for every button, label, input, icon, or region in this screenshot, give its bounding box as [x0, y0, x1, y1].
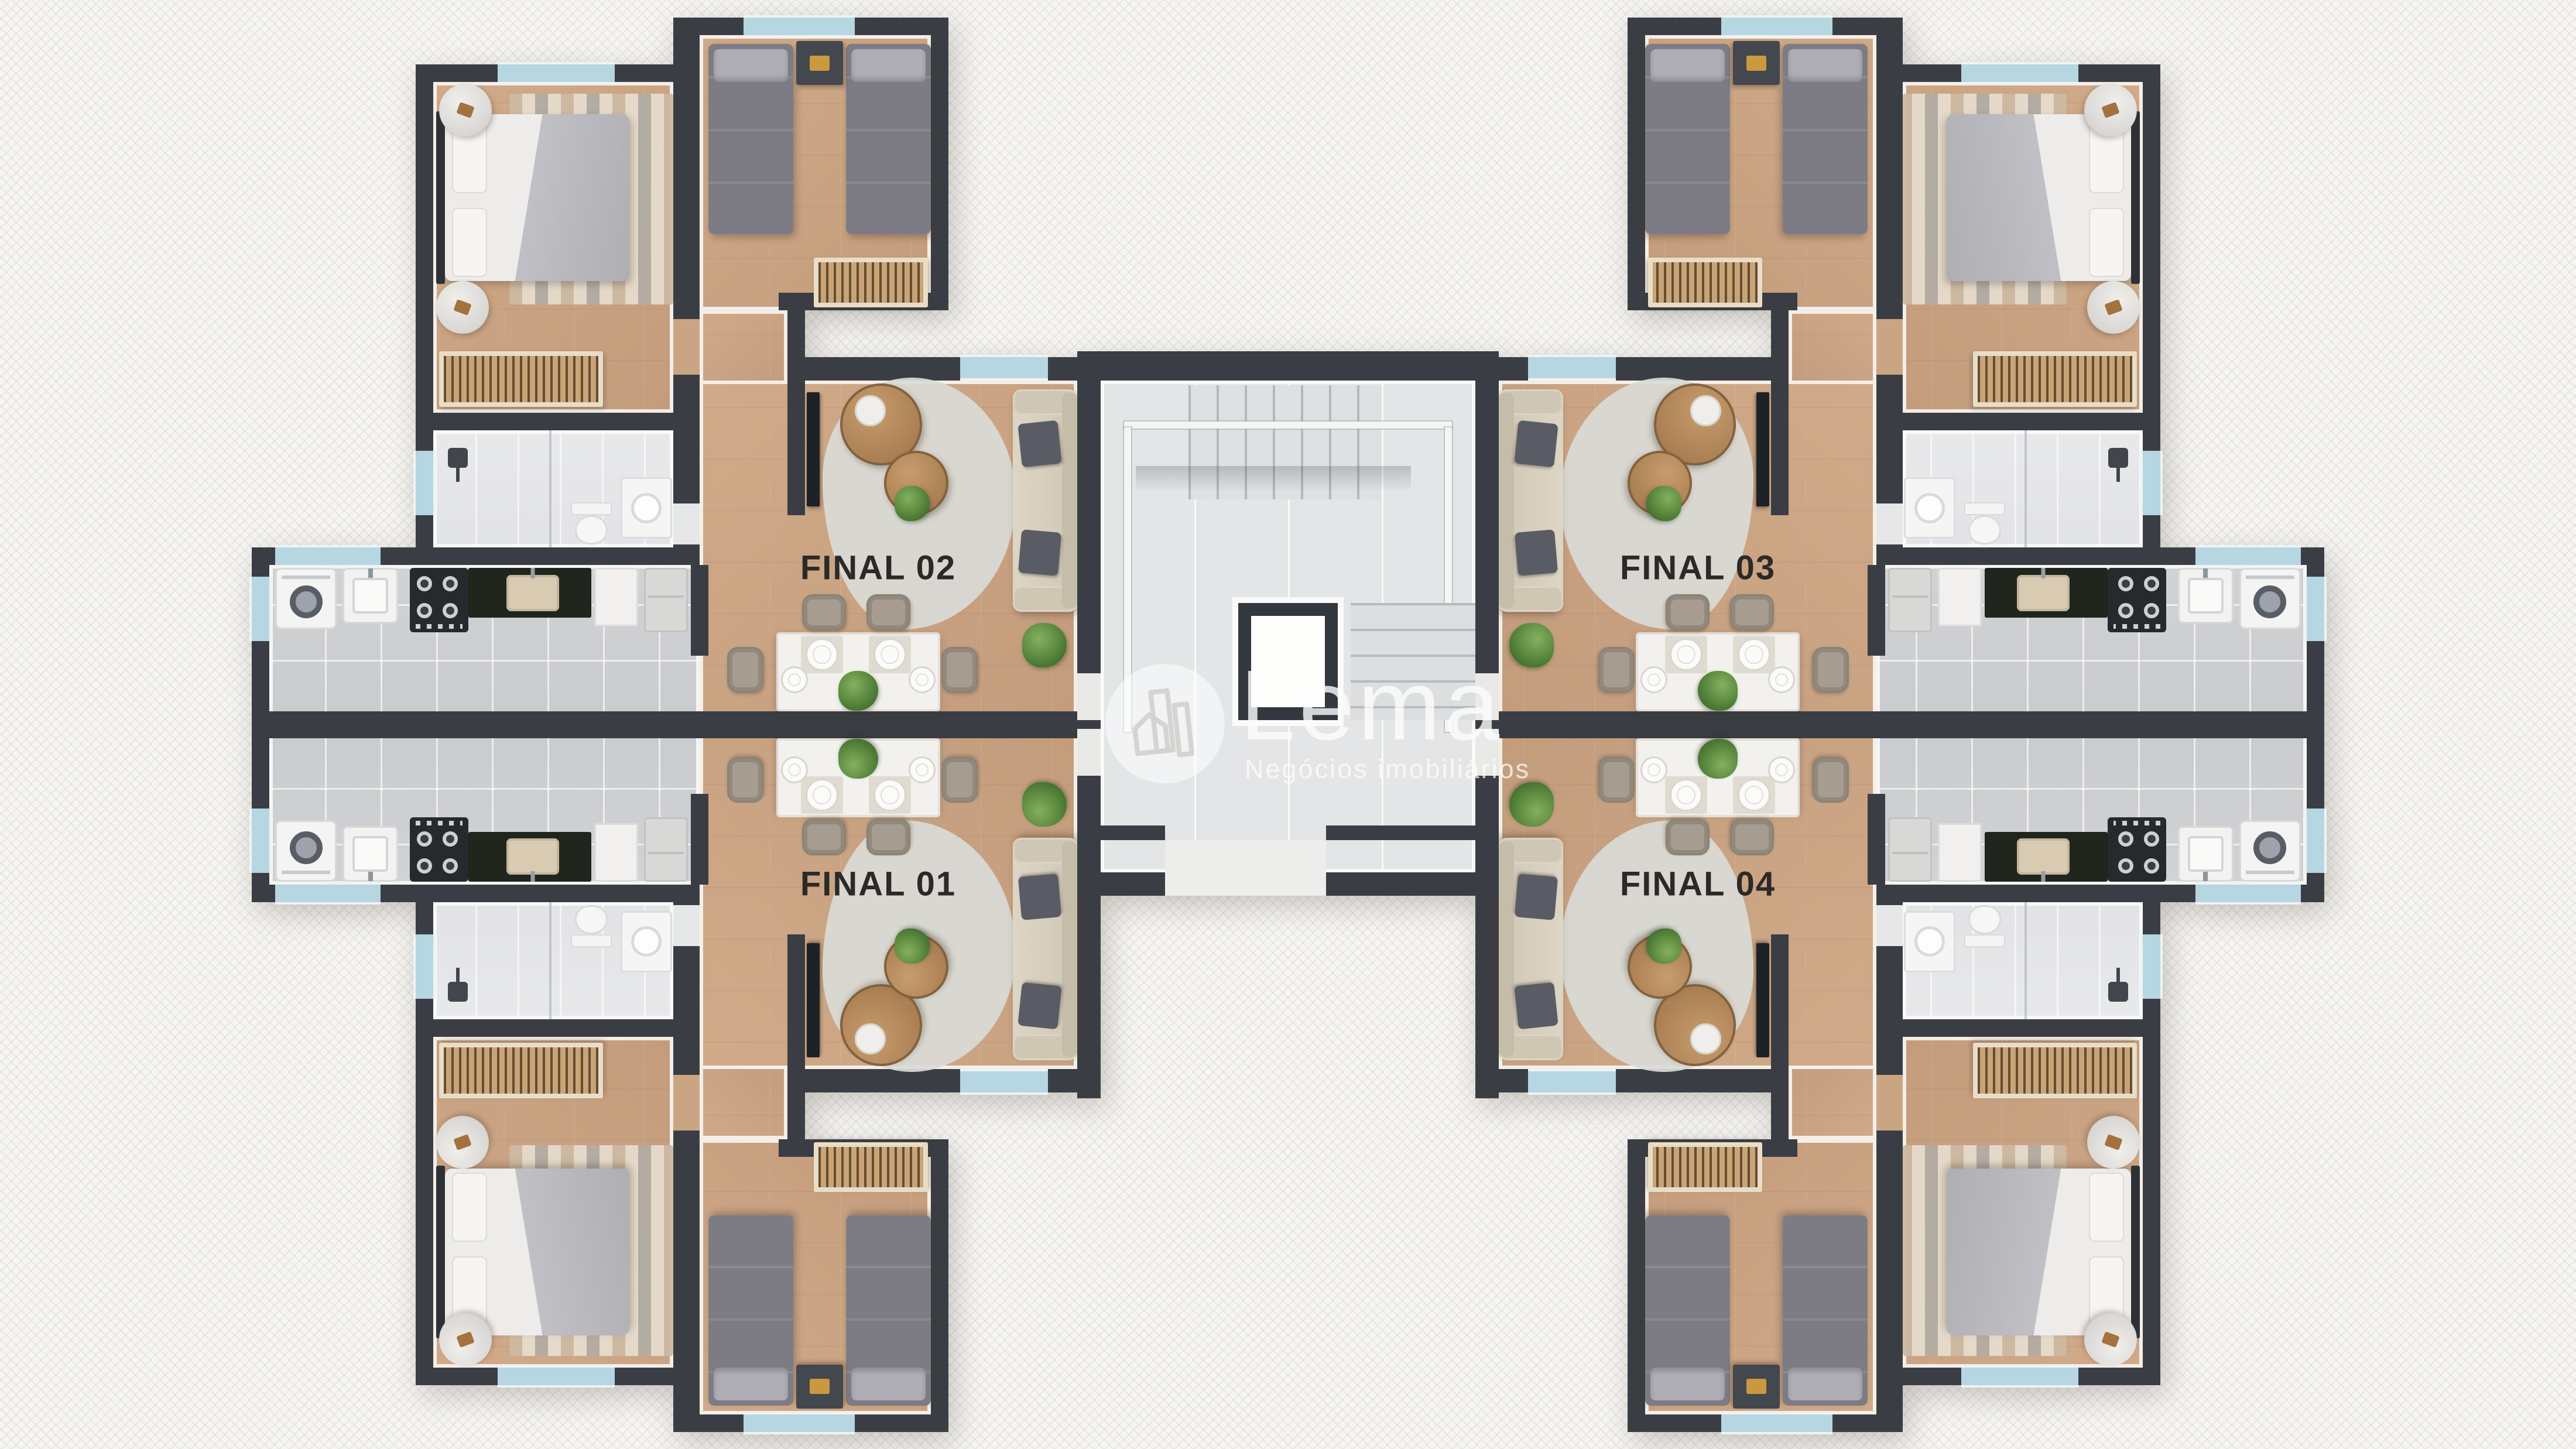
double-bed-icon	[445, 1169, 629, 1335]
wall-corridor-right	[1771, 310, 1789, 515]
dining-chair-icon	[1598, 647, 1635, 693]
pillow-icon	[851, 49, 926, 82]
dining-chair-icon	[1666, 819, 1710, 855]
single-bed-icon	[708, 44, 793, 234]
plate-icon	[1640, 756, 1667, 783]
unit-final-02-area	[252, 12, 1101, 725]
round-side-table-icon	[2084, 1313, 2137, 1366]
corridor-floor	[700, 1063, 787, 1139]
kitchen-window-icon	[2195, 882, 2301, 905]
fridge-icon	[1888, 817, 1932, 882]
twin-bedroom-window-icon	[744, 1412, 855, 1434]
pillow-icon	[714, 1368, 788, 1400]
sofa-icon	[1013, 838, 1077, 1060]
wall-living-top	[787, 1069, 1101, 1092]
kitchen-side-window-icon	[249, 577, 272, 641]
burner-icon	[2144, 858, 2159, 873]
burner-icon	[2118, 576, 2133, 591]
bed-headboard-icon	[436, 1166, 445, 1338]
living-window-icon	[1528, 1069, 1616, 1095]
building-entrance-vestibule	[1165, 840, 1326, 896]
watermark-logo-circle	[1105, 664, 1225, 783]
wall-twin-bedroom-right	[1628, 18, 1645, 310]
cabinet-icon	[594, 568, 638, 626]
wardrobe-icon	[439, 351, 603, 407]
plate-icon	[1738, 779, 1770, 811]
pillow-icon	[1650, 49, 1725, 82]
pillow-icon	[2089, 208, 2124, 277]
bathroom-window-icon	[413, 451, 436, 515]
sofa-cushion-icon	[1514, 420, 1558, 468]
living-window-icon	[960, 1069, 1048, 1095]
unit-final-03-area	[1475, 12, 2324, 725]
coffee-table-plant-icon	[1646, 486, 1681, 521]
apartment-unit	[252, 725, 1101, 1438]
burner-icon	[2118, 831, 2133, 847]
wall-middle-vertical	[673, 902, 700, 1432]
wall-living-top	[787, 357, 1101, 381]
wall-twin-bedroom-right	[931, 1139, 948, 1432]
cabinet-icon	[1938, 823, 1982, 882]
floor-plant-icon	[1022, 782, 1067, 827]
plate-icon	[1640, 666, 1667, 693]
stair-hall-wall-top	[1077, 351, 1499, 381]
dining-chair-icon	[727, 647, 763, 693]
kitchen-window-icon	[2195, 545, 2301, 567]
dining-chair-icon	[1730, 819, 1774, 855]
laundry-tank-icon	[342, 826, 398, 882]
stair-hall-wall-bottom-left	[1077, 872, 1165, 896]
kitchen-side-window-icon	[2304, 577, 2327, 641]
tv-panel-icon	[807, 392, 820, 506]
apartment-unit	[1475, 12, 2324, 725]
wardrobe-icon	[814, 258, 928, 307]
double-bedroom-window-icon	[1961, 62, 2078, 84]
toilet-bowl-icon	[1968, 515, 2001, 544]
centerpiece-plant-icon	[838, 739, 878, 779]
double-bedroom-door-opening	[1876, 1075, 1903, 1131]
bed-blanket-icon	[515, 1169, 629, 1335]
double-bed-icon	[1947, 1169, 2131, 1335]
wall-unit-separation	[1475, 711, 2324, 725]
single-bed-icon	[846, 1215, 931, 1406]
stove-icon	[2108, 568, 2166, 632]
wall-corridor-right	[787, 934, 805, 1139]
sofa-back-icon	[1062, 841, 1077, 1057]
coffee-table-plant-icon	[895, 929, 930, 964]
wall-unit-separation	[1475, 725, 2324, 738]
wall-bedroom-bathroom	[433, 1019, 673, 1037]
kitchen-side-window-icon	[249, 809, 272, 873]
plate-icon	[806, 779, 838, 811]
stove-icon	[410, 568, 468, 632]
wall-living-top	[1475, 357, 1789, 381]
dining-chair-icon	[727, 757, 763, 803]
single-bed-icon	[1645, 1215, 1730, 1406]
tv-panel-icon	[1756, 943, 1769, 1057]
nightstand-icon	[796, 41, 843, 85]
tv-panel-icon	[1756, 392, 1769, 506]
apartment-unit	[252, 12, 1101, 725]
double-bedroom-door-opening	[673, 1075, 700, 1131]
double-bedroom-window-icon	[498, 1365, 615, 1388]
shower-glass-icon	[2025, 430, 2027, 547]
washing-machine-icon	[275, 568, 337, 629]
double-bedroom-window-icon	[1961, 1365, 2078, 1388]
wall-middle-vertical	[1876, 902, 1903, 1432]
bed-headboard-icon	[2131, 111, 2140, 284]
plate-icon	[1738, 638, 1770, 671]
round-side-table-icon	[2084, 84, 2137, 136]
dining-chair-icon	[1813, 647, 1849, 693]
wardrobe-icon	[1648, 258, 1762, 307]
sofa-cushion-icon	[1018, 529, 1061, 576]
centerpiece-plant-icon	[1698, 671, 1738, 711]
wall-bedroom-bathroom	[1903, 1019, 2143, 1037]
tray-icon	[855, 395, 886, 426]
burner-icon	[417, 603, 432, 618]
wall-middle-vertical	[673, 18, 700, 547]
wall-twin-bedroom-right	[931, 18, 948, 310]
stair-hall-wall-bottom-right	[1326, 872, 1499, 896]
round-side-table-icon	[439, 84, 492, 136]
plate-icon	[781, 666, 808, 693]
toilet-bowl-icon	[575, 905, 608, 934]
vanity-sink-icon	[621, 477, 672, 539]
nightstand-icon	[1733, 41, 1780, 85]
burner-icon	[443, 831, 458, 847]
washing-machine-icon	[275, 820, 337, 882]
vestibule-wall-stub-right	[1326, 825, 1475, 840]
single-bed-icon	[1783, 44, 1868, 234]
laundry-tank-icon	[2178, 826, 2234, 882]
burner-icon	[2118, 603, 2133, 618]
wall-unit-separation	[252, 711, 1101, 725]
floor-plan-image: Lema Negócios imobiliários FINAL 01 FINA…	[0, 0, 2576, 1449]
unit-final-04-area	[1475, 725, 2324, 1438]
wall-bedroom-bathroom	[433, 413, 673, 430]
corridor-floor	[1789, 1063, 1876, 1139]
plate-icon	[781, 756, 808, 783]
wall-kitchen-right	[691, 565, 708, 656]
twin-bedroom-window-icon	[1721, 15, 1832, 37]
wall-corridor-right	[787, 310, 805, 515]
dining-chair-icon	[1813, 757, 1849, 803]
bathroom-door-opening	[673, 503, 700, 544]
dining-chair-icon	[802, 594, 846, 631]
sofa-back-icon	[1499, 393, 1514, 608]
double-bedroom-window-icon	[498, 62, 615, 84]
dining-chair-icon	[941, 757, 978, 803]
washing-machine-icon	[2239, 820, 2301, 882]
burner-icon	[417, 831, 432, 847]
plate-icon	[1670, 779, 1703, 811]
stair-hall-wall-left	[1077, 351, 1101, 896]
laundry-tank-icon	[342, 568, 398, 624]
sofa-cushion-icon	[1018, 982, 1061, 1030]
shower-glass-icon	[549, 430, 551, 547]
dining-chair-icon	[866, 594, 910, 631]
bed-headboard-icon	[436, 111, 445, 284]
kitchen-side-window-icon	[2304, 809, 2327, 873]
tray-icon	[1690, 1023, 1721, 1054]
nightstand-icon	[1733, 1365, 1780, 1409]
round-side-table-icon	[439, 1313, 492, 1366]
plate-icon	[909, 666, 936, 693]
kitchen-sink-icon	[2017, 838, 2070, 875]
sofa-back-icon	[1499, 841, 1514, 1057]
sofa-cushion-icon	[1018, 873, 1061, 920]
burner-icon	[417, 576, 432, 591]
wardrobe-icon	[1648, 1142, 1762, 1192]
kitchen-sink-icon	[2017, 575, 2070, 611]
toilet-bowl-icon	[575, 515, 608, 544]
living-window-icon	[1528, 355, 1616, 381]
wardrobe-icon	[1973, 351, 2137, 407]
toilet-icon	[571, 934, 612, 947]
unit-final-01-area	[252, 725, 1101, 1438]
kitchen-window-icon	[275, 545, 381, 567]
sofa-icon	[1013, 389, 1077, 612]
plate-icon	[1768, 756, 1795, 783]
wall-kitchen-right	[691, 794, 708, 885]
twin-bedroom-window-icon	[744, 15, 855, 37]
double-bed-icon	[1947, 114, 2131, 281]
bathroom-window-icon	[2140, 451, 2163, 515]
pillow-icon	[851, 1368, 926, 1400]
laundry-tank-icon	[2178, 568, 2234, 624]
bathroom-door-opening	[673, 905, 700, 946]
cabinet-icon	[594, 823, 638, 882]
pillow-icon	[1788, 1368, 1862, 1400]
shower-head-icon	[448, 448, 468, 468]
twin-bedroom-window-icon	[1721, 1412, 1832, 1434]
floor-plant-icon	[1509, 623, 1554, 667]
fridge-icon	[1888, 568, 1932, 632]
nightstand-icon	[796, 1365, 843, 1409]
vestibule-wall-stub-left	[1101, 825, 1165, 840]
dining-chair-icon	[1666, 594, 1710, 631]
burner-icon	[2144, 576, 2159, 591]
bathroom-door-opening	[1876, 905, 1903, 946]
pillow-icon	[452, 1173, 487, 1242]
bed-blanket-icon	[515, 114, 629, 281]
plate-icon	[1768, 666, 1795, 693]
round-side-table-icon	[436, 1116, 489, 1169]
burner-icon	[2118, 858, 2133, 873]
fridge-icon	[644, 817, 688, 882]
double-bed-icon	[445, 114, 629, 281]
vanity-sink-icon	[1904, 477, 1955, 539]
washing-machine-icon	[2239, 568, 2301, 629]
dining-chair-icon	[941, 647, 978, 693]
shower-head-icon	[2108, 448, 2128, 468]
corridor-floor	[1789, 310, 1876, 386]
stove-icon	[2108, 817, 2166, 882]
wing-right	[1475, 12, 2324, 1438]
sofa-icon	[1499, 389, 1563, 612]
plate-icon	[873, 638, 906, 671]
round-side-table-icon	[436, 281, 489, 334]
dining-chair-icon	[866, 819, 910, 855]
sofa-cushion-icon	[1515, 529, 1558, 576]
burner-icon	[417, 858, 432, 873]
vanity-sink-icon	[1904, 911, 1955, 972]
bathroom-window-icon	[413, 934, 436, 999]
sofa-cushion-icon	[1018, 420, 1061, 468]
single-bed-icon	[708, 1215, 793, 1406]
wall-corridor-right	[1771, 934, 1789, 1139]
wardrobe-icon	[1973, 1043, 2137, 1098]
tray-icon	[1690, 395, 1721, 426]
tv-panel-icon	[807, 943, 820, 1057]
burner-icon	[2144, 831, 2159, 847]
kitchen-sink-icon	[506, 575, 559, 611]
pillow-icon	[2089, 1173, 2124, 1242]
plate-icon	[873, 779, 906, 811]
bed-headboard-icon	[2131, 1166, 2140, 1338]
wardrobe-icon	[439, 1043, 603, 1098]
watermark-tagline: Negócios imobiliários	[1245, 754, 1530, 785]
centerpiece-plant-icon	[1698, 739, 1738, 779]
burner-icon	[443, 576, 458, 591]
toilet-bowl-icon	[1968, 905, 2001, 934]
sofa-cushion-icon	[1515, 873, 1558, 920]
unit-label-final-04: FINAL 04	[1620, 865, 1776, 904]
dining-chair-icon	[802, 819, 846, 855]
toilet-icon	[1964, 502, 2005, 515]
bathroom-door-opening	[1876, 503, 1903, 544]
shower-glass-icon	[549, 902, 551, 1019]
double-bedroom-door-opening	[1876, 319, 1903, 375]
bed-blanket-icon	[1947, 114, 2061, 281]
double-bedroom-door-opening	[673, 319, 700, 375]
wardrobe-icon	[814, 1142, 928, 1192]
shower-glass-icon	[2025, 902, 2027, 1019]
fridge-icon	[644, 568, 688, 632]
entry-door-opening	[1077, 729, 1101, 776]
unit-label-final-02: FINAL 02	[800, 549, 956, 588]
toilet-icon	[571, 502, 612, 515]
stove-icon	[410, 817, 468, 882]
stair-hall-wall-right	[1475, 351, 1499, 896]
pillow-icon	[452, 208, 487, 277]
apartment-unit	[1475, 725, 2324, 1438]
shower-head-icon	[2108, 982, 2128, 1002]
wall-twin-bedroom-right	[1628, 1139, 1645, 1432]
wall-kitchen-right	[1868, 794, 1885, 885]
plate-icon	[806, 638, 838, 671]
stair-shadow	[1136, 466, 1411, 492]
kitchen-window-icon	[275, 882, 381, 905]
pillow-icon	[1650, 1368, 1725, 1400]
wall-unit-separation	[252, 725, 1101, 738]
living-window-icon	[960, 355, 1048, 381]
burner-icon	[2144, 603, 2159, 618]
stair-railing-icon	[1124, 422, 1452, 429]
wall-middle-vertical	[1876, 18, 1903, 547]
floor-plant-icon	[1509, 782, 1554, 827]
vanity-sink-icon	[621, 911, 672, 972]
single-bed-icon	[1645, 44, 1730, 234]
sofa-cushion-icon	[1514, 982, 1558, 1030]
plate-icon	[1670, 638, 1703, 671]
kitchen-sink-icon	[506, 838, 559, 875]
round-side-table-icon	[2087, 281, 2140, 334]
corridor-floor	[700, 310, 787, 386]
single-bed-icon	[1783, 1215, 1868, 1406]
entry-door-opening	[1077, 673, 1101, 720]
plate-icon	[909, 756, 936, 783]
tray-icon	[855, 1023, 886, 1054]
unit-label-final-01: FINAL 01	[800, 865, 956, 904]
wall-living-top	[1475, 1069, 1789, 1092]
pillow-icon	[1788, 49, 1862, 82]
watermark-brand: Lema	[1240, 656, 1503, 755]
pillow-icon	[714, 49, 788, 82]
shower-head-icon	[448, 982, 468, 1002]
wall-bedroom-bathroom	[1903, 413, 2143, 430]
unit-label-final-03: FINAL 03	[1620, 549, 1776, 588]
toilet-icon	[1964, 934, 2005, 947]
burner-icon	[443, 858, 458, 873]
burner-icon	[443, 603, 458, 618]
sofa-back-icon	[1062, 393, 1077, 608]
bathroom-window-icon	[2140, 934, 2163, 999]
coffee-table-plant-icon	[1646, 929, 1681, 964]
single-bed-icon	[846, 44, 931, 234]
sofa-icon	[1499, 838, 1563, 1060]
bed-blanket-icon	[1947, 1169, 2061, 1335]
wall-kitchen-right	[1868, 565, 1885, 656]
dining-chair-icon	[1598, 757, 1635, 803]
buildings-and-house-icon	[1126, 682, 1204, 765]
cabinet-icon	[1938, 568, 1982, 626]
round-side-table-icon	[2087, 1116, 2140, 1169]
dining-chair-icon	[1730, 594, 1774, 631]
stair-hall	[1077, 351, 1499, 896]
wing-left	[252, 12, 1101, 1438]
